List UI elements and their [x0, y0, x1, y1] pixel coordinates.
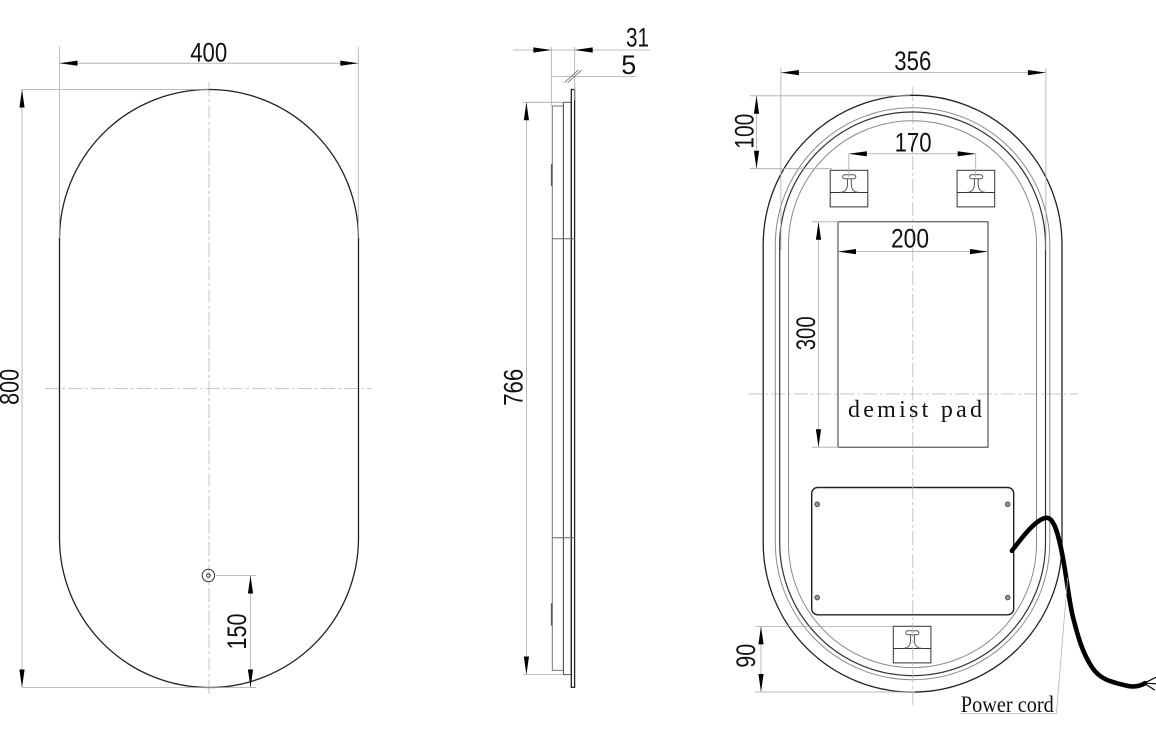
- svg-text:31: 31: [626, 22, 649, 52]
- svg-text:150: 150: [222, 614, 252, 650]
- svg-text:demist pad: demist pad: [848, 397, 982, 423]
- svg-text:100: 100: [729, 114, 759, 149]
- svg-text:90: 90: [731, 644, 761, 668]
- svg-text:356: 356: [894, 46, 931, 76]
- svg-text:766: 766: [499, 369, 529, 406]
- svg-text:Power cord: Power cord: [961, 692, 1054, 717]
- svg-text:400: 400: [190, 37, 227, 67]
- svg-text:170: 170: [895, 127, 932, 157]
- svg-text:800: 800: [0, 369, 24, 405]
- svg-text:200: 200: [891, 224, 929, 254]
- svg-text:300: 300: [791, 316, 821, 350]
- svg-text:5: 5: [621, 50, 636, 80]
